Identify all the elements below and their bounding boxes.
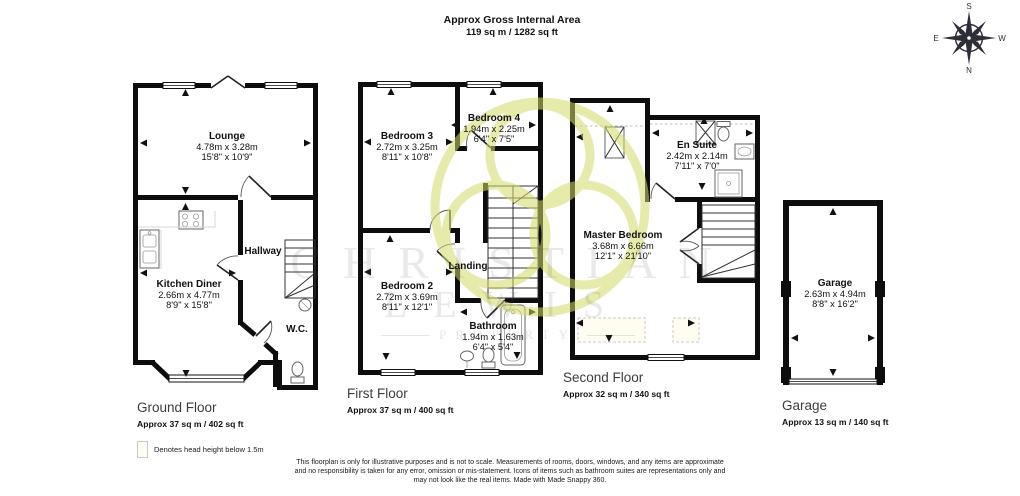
floor-label-garage: Garage Approx 13 sq m / 140 sq ft	[782, 399, 889, 427]
head-height-zone	[578, 318, 645, 342]
room-label-lounge: Lounge 4.78m x 3.28m 15'8" x 10'9"	[196, 132, 258, 162]
title-line2: 119 sq m / 1282 sq ft	[444, 27, 581, 38]
floor-label-ground: Ground Floor Approx 37 sq m / 402 sq ft	[137, 401, 244, 429]
bay-window	[152, 362, 261, 382]
room-label-kitchen-diner: Kitchen Diner 2.66m x 4.77m 8'9" x 15'8"	[156, 280, 221, 310]
disclaimer: This floorplan is only for illustrative …	[295, 458, 726, 486]
compass-north-label: N	[966, 66, 972, 75]
room-label-bathroom: Bathroom 1.94m x 1.63m 6'4" x 5'4"	[462, 322, 524, 352]
ensuite-toilet-icon	[717, 122, 730, 142]
garage-door	[789, 379, 877, 384]
room-label-landing: Landing	[449, 262, 488, 272]
room-label-garage: Garage 2.63m x 4.94m 8'8" x 16'2"	[804, 279, 866, 309]
wc-diagonal-wall	[241, 323, 255, 335]
room-label-ensuite: En Suite 2.42m x 2.14m 7'11" x 7'0"	[666, 141, 728, 171]
lounge-door	[241, 176, 271, 197]
ground-floor-plan	[125, 75, 325, 395]
hall-basin-icon	[299, 299, 311, 311]
compass-south-label: S	[966, 2, 971, 11]
head-height-zone	[673, 318, 699, 342]
floor-label-first: First Floor Approx 37 sq m / 400 sq ft	[347, 387, 454, 415]
wc-toilet-icon	[291, 362, 304, 383]
second-floor-stairs	[702, 205, 755, 278]
disclaimer-line1: This floorplan is only for illustrative …	[295, 458, 726, 467]
legend: Denotes head height below 1.5m	[137, 441, 264, 458]
second-floor-window	[648, 355, 684, 361]
first-floor-stairs	[488, 186, 538, 298]
kitchen-sink-icon	[140, 230, 159, 268]
ensuite-basin-icon	[735, 144, 754, 159]
legend-label: Denotes head height below 1.5m	[154, 445, 264, 454]
page-title: Approx Gross Internal Area 119 sq m / 12…	[444, 14, 581, 38]
ensuite-door	[651, 183, 675, 199]
master-bedroom-doors	[680, 228, 699, 264]
bathroom-basin-icon	[461, 351, 474, 368]
room-label-bedroom2: Bedroom 2 2.72m x 3.69m 8'11" x 12'1"	[376, 282, 438, 312]
ground-stairs	[285, 240, 315, 298]
compass-west-label: W	[998, 34, 1006, 43]
title-line1: Approx Gross Internal Area	[444, 14, 581, 26]
floor-label-second: Second Floor Approx 32 sq m / 340 sq ft	[563, 371, 670, 399]
wc-door	[256, 321, 272, 343]
head-height-legend-icon	[137, 441, 148, 458]
floorplan-page: Approx Gross Internal Area 119 sq m / 12…	[0, 0, 1020, 496]
room-label-bedroom4: Bedroom 4 1.94m x 2.25m 6'4" x 7'5"	[463, 114, 525, 144]
room-label-hallway: Hallway	[244, 247, 281, 257]
entrance-door	[211, 76, 245, 88]
room-label-wc: W.C.	[286, 325, 308, 335]
bedroom3-door	[430, 210, 450, 230]
stove-icon	[179, 211, 203, 229]
shower-icon	[715, 170, 742, 197]
skylight-icon	[605, 127, 624, 158]
lounge-windows	[163, 83, 297, 89]
disclaimer-line2: and no responsibility is taken for any e…	[295, 467, 726, 476]
kitchen-door	[217, 256, 238, 280]
compass-east-label: E	[933, 34, 938, 43]
disclaimer-line3: may not look like the real items. Made w…	[295, 476, 726, 485]
compass-icon: S N E W	[930, 2, 1008, 74]
room-label-bedroom3: Bedroom 3 2.72m x 3.25m 8'11" x 10'8"	[376, 132, 438, 162]
room-label-master-bedroom: Master Bedroom 3.68m x 6.66m 12'1" x 21'…	[584, 231, 663, 261]
